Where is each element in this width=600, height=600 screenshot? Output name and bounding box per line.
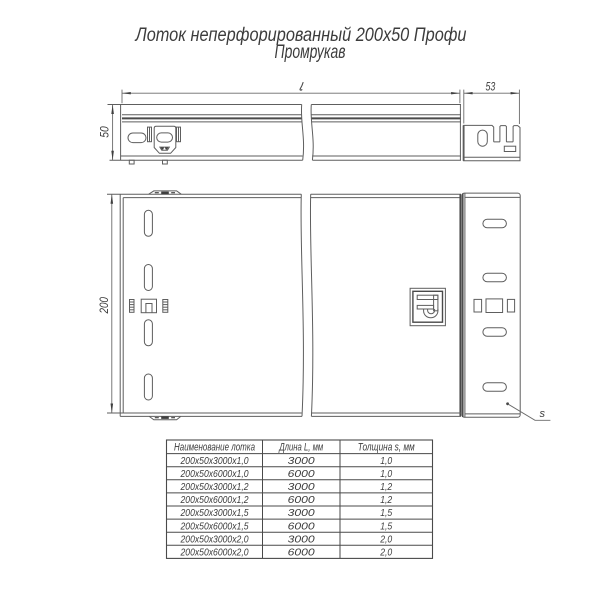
svg-text:Толщина s, мм: Толщина s, мм [358, 442, 416, 454]
svg-text:1,0: 1,0 [380, 456, 392, 467]
svg-text:200х50х3000х1,2: 200х50х3000х1,2 [180, 482, 249, 493]
svg-text:200х50х3000х1,5: 200х50х3000х1,5 [180, 508, 249, 519]
svg-text:200х50х6000х1,5: 200х50х6000х1,5 [180, 521, 249, 532]
svg-text:6000: 6000 [288, 495, 315, 506]
svg-text:1,5: 1,5 [380, 508, 392, 519]
svg-text:3000: 3000 [288, 508, 315, 519]
svg-text:1,2: 1,2 [380, 482, 392, 493]
svg-text:1,0: 1,0 [380, 469, 392, 480]
svg-text:200х50х6000х1,2: 200х50х6000х1,2 [180, 495, 249, 506]
svg-text:50: 50 [97, 126, 111, 138]
svg-text:2,0: 2,0 [379, 548, 392, 559]
svg-text:6000: 6000 [288, 548, 315, 559]
svg-text:6000: 6000 [288, 469, 315, 480]
svg-text:3000: 3000 [288, 534, 315, 545]
svg-text:Наименование лотка: Наименование лотка [174, 442, 255, 454]
svg-text:6000: 6000 [288, 521, 315, 532]
svg-text:200х50х3000х2,0: 200х50х3000х2,0 [180, 534, 249, 545]
svg-text:1,5: 1,5 [380, 521, 392, 532]
svg-text:Промрукав: Промрукав [275, 41, 346, 63]
svg-text:s: s [539, 408, 545, 420]
svg-text:3000: 3000 [288, 482, 315, 493]
svg-text:3000: 3000 [288, 456, 315, 467]
svg-text:200х50х3000х1,0: 200х50х3000х1,0 [180, 456, 249, 467]
svg-text:2,0: 2,0 [379, 534, 392, 545]
svg-text:Длина L, мм: Длина L, мм [278, 442, 323, 454]
svg-text:53: 53 [486, 80, 496, 94]
svg-text:1,2: 1,2 [380, 495, 392, 506]
svg-text:200х50х6000х2,0: 200х50х6000х2,0 [180, 548, 249, 559]
svg-text:200: 200 [99, 297, 111, 315]
svg-text:200х50х6000х1,0: 200х50х6000х1,0 [180, 469, 249, 480]
